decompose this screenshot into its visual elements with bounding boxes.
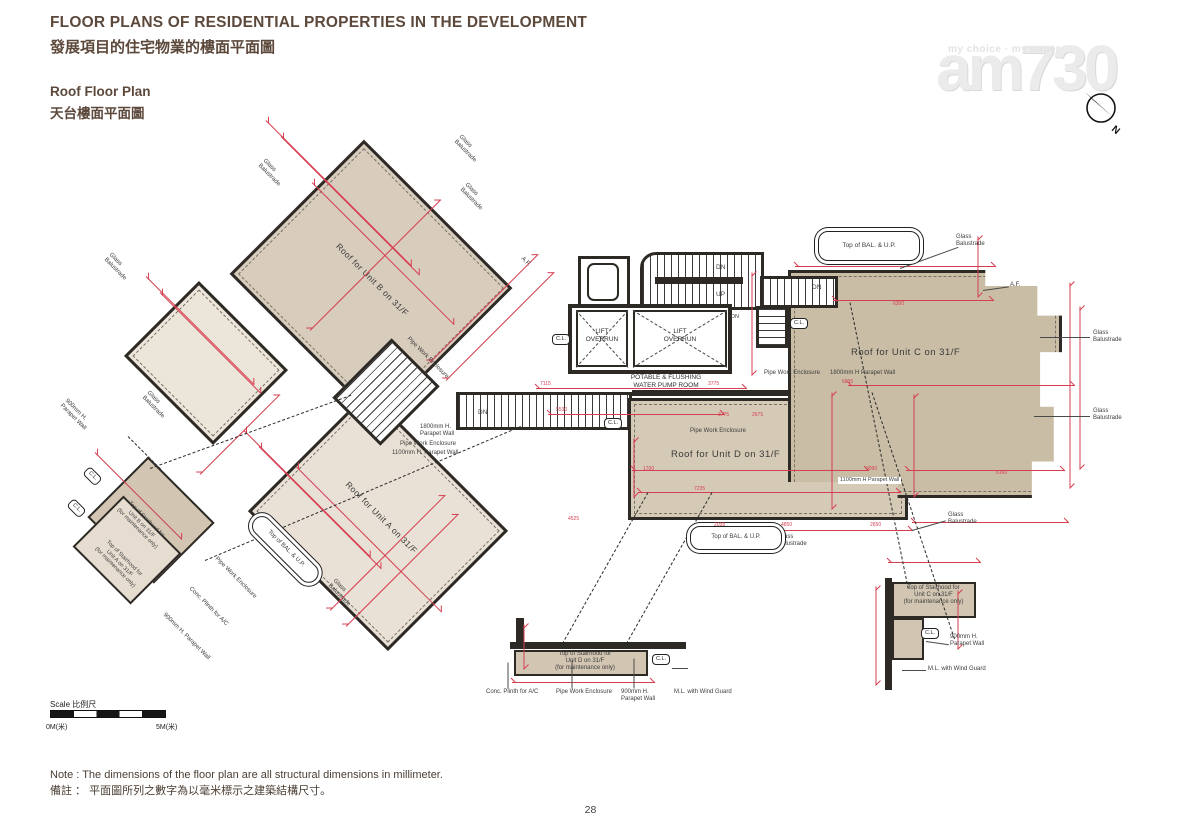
plan-label: 7235 <box>694 486 705 492</box>
plan-label: Conc. Plinth for A/C <box>187 586 229 628</box>
stairhood-d-label: Top of Stairhood for Unit D on 31/F (for… <box>530 651 640 673</box>
leader-line <box>508 663 509 689</box>
plan-label: C.L. <box>67 498 87 518</box>
plan-label: 900mm H. Parapet Wall <box>58 398 92 432</box>
plan-label: 3775 <box>718 412 729 418</box>
plan-label: 2058 <box>714 522 725 528</box>
plan-label: 7115 <box>540 381 551 387</box>
lift-lobby-inner <box>587 263 619 301</box>
plan-label: 900mm H. Parapet Wall <box>950 634 984 648</box>
lift-overrun-label: LIFT OVERRUN <box>635 328 725 344</box>
leader-line <box>902 670 926 671</box>
plan-label: M.L. with Wind Guard <box>928 666 986 673</box>
plan-subtitle-en: Roof Floor Plan <box>50 84 151 99</box>
lift-overrun-label: LIFT OVERRUN <box>578 328 626 344</box>
plan-label: Conc. Plinth for A/C <box>486 689 538 696</box>
leader-line <box>1034 416 1090 417</box>
plan-label: C.L. <box>604 418 622 429</box>
plan-label: 900mm H. Parapet Wall <box>621 689 655 703</box>
page-title-en: FLOOR PLANS OF RESIDENTIAL PROPERTIES IN… <box>50 14 587 32</box>
plan-label: 2675 <box>752 412 763 418</box>
stairhood-c-inset-side <box>892 618 924 660</box>
dimension-line <box>795 266 995 267</box>
plan-label: 1800mm H. Parapet Wall <box>420 424 454 438</box>
plan-label: Pipe Work Enclosure <box>213 556 258 601</box>
core-wall <box>632 390 790 396</box>
notes: Note : The dimensions of the floor plan … <box>50 768 443 800</box>
scale-label: Scale 比例尺 <box>50 699 96 710</box>
page-title-zh: 發展項目的住宅物業的樓面平面圖 <box>50 36 587 57</box>
stairhood-c-label: Top of Stairhood for Unit C on 31/F (for… <box>886 585 981 607</box>
dimension-line <box>876 587 877 685</box>
leader-line <box>672 668 688 669</box>
plan-label: 3775 <box>708 381 719 387</box>
plan-label: 2650 <box>870 522 881 528</box>
dimension-line <box>536 388 746 389</box>
brochure-page: FLOOR PLANS OF RESIDENTIAL PROPERTIES IN… <box>0 0 1181 830</box>
note-zh: 備註 ： 平面圖所列之數字為以毫米標示之建築結構尺寸。 <box>50 784 443 800</box>
dimension-line <box>634 439 635 497</box>
plan-label: Pipe Work Enclosure <box>556 689 612 696</box>
page-number: 28 <box>0 804 1181 816</box>
plan-label: C.L. <box>552 334 570 345</box>
plan-label: Glass Balustrade <box>458 182 488 212</box>
unit-c-roof-label: Roof for Unit C on 31/F <box>851 347 1051 358</box>
plan-label: 1800mm H Parapet Wall <box>830 370 895 377</box>
plan-label: Glass Balustrade <box>102 252 132 282</box>
plan-label: 1100mm H Parapet Wall <box>838 477 901 484</box>
plan-label: Pipe Work Enclosure <box>764 370 820 377</box>
stair-landing <box>655 277 743 284</box>
lift-overrun-right: LIFT OVERRUN <box>633 310 727 367</box>
dimension-line <box>848 385 1074 386</box>
plan-label: 1700 <box>643 466 654 472</box>
dimension-line <box>914 395 915 497</box>
plan-label: C.L. <box>83 466 103 486</box>
dimension-line <box>832 393 833 509</box>
plan-label: 900mm H. Parapet Wall <box>161 612 211 662</box>
plan-label: A.F. <box>1010 282 1020 289</box>
dimension-line <box>752 273 753 375</box>
plan-label: Glass Balustrade <box>1093 330 1122 344</box>
svg-text:N: N <box>1109 124 1122 137</box>
plan-label: UP <box>716 291 725 299</box>
scale-start-label: 0M(米) <box>46 722 67 732</box>
plan-label: Glass Balustrade <box>778 534 807 548</box>
north-arrow-icon: N <box>1080 88 1126 138</box>
lift-overrun-left: LIFT OVERRUN <box>576 310 628 367</box>
plan-label: Pipe Work Enclosure <box>690 428 746 435</box>
top-of-bal-up-label: Top of BAL. & U.P. <box>818 231 920 261</box>
plan-subtitle: Roof Floor Plan 天台樓面平面圖 <box>50 84 151 122</box>
leader-line <box>926 641 949 645</box>
page-header: FLOOR PLANS OF RESIDENTIAL PROPERTIES IN… <box>50 14 587 57</box>
plan-label: Glass Balustrade <box>948 512 977 526</box>
plan-label: DN <box>716 264 725 272</box>
scale-end-label: 5M(米) <box>156 722 177 732</box>
leader-line <box>1040 337 1090 338</box>
plan-label: 5530 <box>556 407 567 413</box>
am730-tagline: my choice · my paper <box>948 44 1060 55</box>
plan-label: C.L. <box>921 628 939 639</box>
note-en: Note : The dimensions of the floor plan … <box>50 768 443 784</box>
plan-label: Glass Balustrade <box>452 134 482 164</box>
dimension-line <box>906 470 1064 471</box>
plan-subtitle-zh: 天台樓面平面圖 <box>50 102 151 122</box>
plan-label: 6300 <box>893 301 904 307</box>
dimension-line <box>1080 307 1081 469</box>
dimension-line <box>1070 283 1071 488</box>
plan-label: C.L. <box>790 318 808 329</box>
plan-label: 1100mm H. Parapet Wall <box>392 450 458 457</box>
plan-label: A.F. <box>519 256 531 268</box>
plan-label: 4525 <box>568 516 579 522</box>
dimension-line <box>638 492 900 493</box>
plan-label: 6835 <box>842 379 853 385</box>
scale-bar <box>50 710 166 718</box>
plan-label: 3090 <box>866 466 877 472</box>
plan-label: DN <box>731 314 739 321</box>
dimension-line <box>524 625 525 669</box>
dimension-line <box>833 300 993 301</box>
plan-label: DN <box>478 409 487 417</box>
stair-block-c-vertical <box>756 306 788 348</box>
plan-label: Glass Balustrade <box>956 234 985 248</box>
dimension-line <box>548 414 724 415</box>
inset-d-wall <box>510 642 686 649</box>
plan-label: M.L. with Wind Guard <box>674 689 732 696</box>
plan-label: Glass Balustrade <box>1093 408 1122 422</box>
plan-label: 6160 <box>996 470 1007 476</box>
plan-label: DN <box>812 284 821 292</box>
dimension-line <box>632 470 868 471</box>
plan-label: Glass Balustrade <box>256 158 286 188</box>
stair-block-c-horizontal <box>760 276 838 308</box>
top-of-bal-up-label: Top of BAL. & U.P. <box>690 526 782 550</box>
plan-label: 4850 <box>781 522 792 528</box>
plan-label: C.L. <box>652 654 670 665</box>
plan-label: Pipe Work Enclosure <box>400 441 456 448</box>
